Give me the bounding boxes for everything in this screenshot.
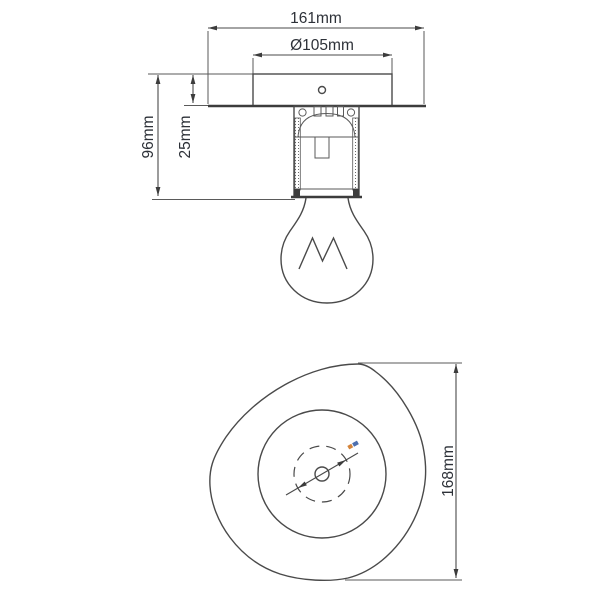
tiny-label-mark-blue bbox=[352, 441, 359, 447]
arrowhead-bottom bbox=[156, 187, 161, 196]
technical-drawing-page: 161mm Ø105mm 96mm 25mm bbox=[0, 0, 600, 599]
canopy-body bbox=[253, 74, 392, 106]
dimension-plan-height: 168mm bbox=[345, 363, 462, 580]
arrowhead-left bbox=[208, 26, 217, 31]
socket-housing bbox=[291, 106, 362, 197]
canopy-center-hole bbox=[319, 87, 326, 94]
dimension-overall-height: 96mm bbox=[140, 74, 295, 200]
light-bulb bbox=[281, 198, 373, 303]
arrowhead-top bbox=[191, 75, 196, 84]
canopy-outline bbox=[253, 74, 392, 106]
canopy-height-label: 25mm bbox=[177, 115, 194, 158]
flange-corner-left bbox=[294, 189, 300, 196]
arrowhead-left bbox=[253, 53, 262, 58]
screw-right bbox=[347, 109, 354, 116]
socket-tab bbox=[315, 137, 329, 158]
terminal-tab bbox=[326, 107, 333, 117]
arrowhead-top bbox=[454, 364, 459, 373]
flange-corner-right bbox=[353, 189, 359, 196]
socket-dome bbox=[298, 114, 355, 138]
arrowhead-bottom bbox=[191, 94, 196, 103]
screw-left bbox=[299, 109, 306, 116]
diameter-line bbox=[286, 453, 358, 495]
bottom-plan-view: 168mm bbox=[210, 363, 462, 580]
overall-height-label: 96mm bbox=[140, 115, 157, 158]
canopy-diameter-label: Ø105mm bbox=[290, 37, 354, 54]
front-elevation-view: 161mm Ø105mm 96mm 25mm bbox=[140, 10, 426, 303]
tiny-diameter-label bbox=[347, 441, 359, 450]
filament-symbol bbox=[299, 238, 347, 269]
ceiling-lamp-technical-drawing: 161mm Ø105mm 96mm 25mm bbox=[0, 0, 600, 599]
plan-height-label: 168mm bbox=[440, 445, 457, 497]
arrowhead-right bbox=[383, 53, 392, 58]
arrowhead-top bbox=[156, 75, 161, 84]
arrowhead-right bbox=[415, 26, 424, 31]
dimension-canopy-diameter: Ø105mm bbox=[253, 37, 392, 74]
canopy-plan-outline bbox=[210, 364, 426, 580]
socket-outer-box bbox=[294, 106, 359, 197]
arrowhead-bottom bbox=[454, 569, 459, 578]
tiny-label-mark-orange bbox=[347, 444, 353, 450]
dimension-canopy-height: 25mm bbox=[177, 75, 255, 159]
overall-width-label: 161mm bbox=[290, 10, 342, 27]
